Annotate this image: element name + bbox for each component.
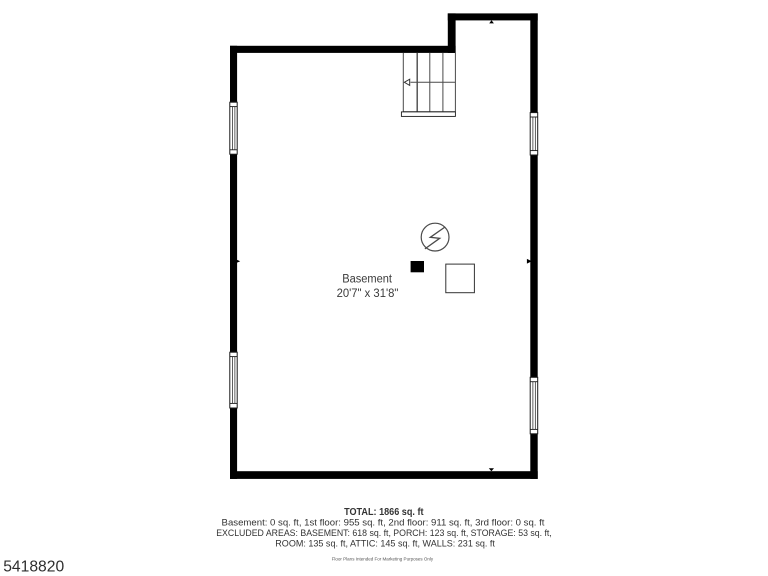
svg-text:EXCLUDED AREAS: BASEMENT: 618: EXCLUDED AREAS: BASEMENT: 618 sq. ft, PO… — [216, 528, 552, 538]
svg-text:Basement: 0 sq. ft, 1st floor:: Basement: 0 sq. ft, 1st floor: 955 sq. f… — [222, 517, 545, 527]
svg-text:Floor Plans Intended For Marke: Floor Plans Intended For Marketing Purpo… — [332, 557, 434, 562]
svg-text:20'7" x 31'8": 20'7" x 31'8" — [337, 288, 399, 300]
svg-text:TOTAL: 1866 sq. ft: TOTAL: 1866 sq. ft — [344, 507, 424, 518]
svg-text:5418820: 5418820 — [3, 558, 64, 576]
svg-text:ROOM: 135 sq. ft, ATTIC: 145 s: ROOM: 135 sq. ft, ATTIC: 145 sq. ft, WAL… — [275, 539, 495, 549]
svg-text:Basement: Basement — [342, 274, 393, 286]
